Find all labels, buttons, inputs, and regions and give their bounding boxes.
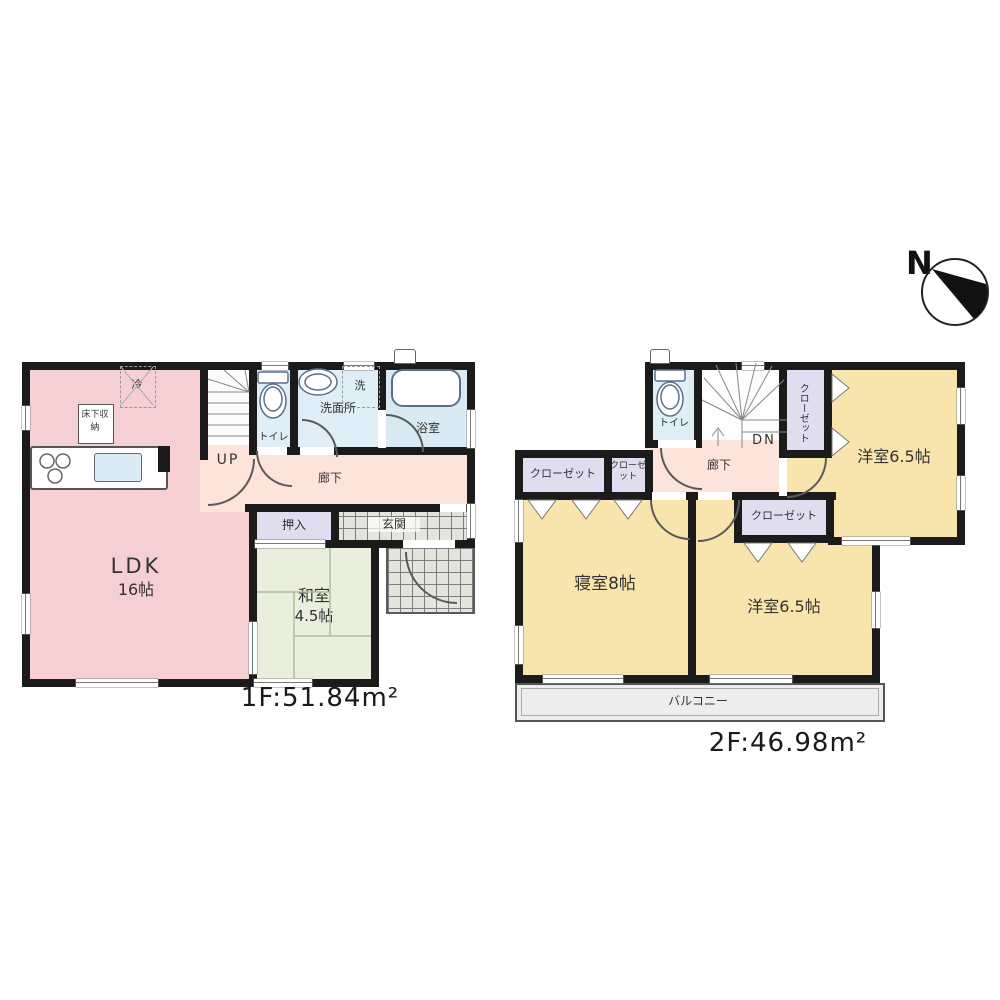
hallway-label-2f: 廊下 [694, 458, 744, 473]
wall [331, 504, 339, 548]
hallway-label: 廊下 [304, 471, 356, 486]
ldk-size: 16帖 [118, 580, 154, 599]
wall [694, 362, 702, 448]
window [22, 406, 30, 430]
dn-label: DN [744, 433, 784, 449]
western-a-label: 洋室6.5帖 [834, 447, 954, 467]
toilet-vent-2f [650, 349, 670, 364]
door-opening [698, 492, 732, 500]
laundry-label: 洗 [352, 379, 368, 392]
closet-vertical-label: クローゼット [796, 372, 808, 454]
window [957, 388, 965, 424]
closet-small-label: クローゼット [607, 461, 649, 483]
window [76, 679, 158, 687]
closet-mid-label: クローゼット [739, 509, 829, 522]
ldk-name: LDK [111, 554, 162, 578]
closet-wide-label: クローゼット [519, 467, 607, 480]
sliding-door-washitsu [249, 622, 257, 674]
bath-vent [394, 349, 416, 364]
up-label: UP [206, 452, 250, 469]
window [957, 476, 965, 510]
wall [515, 450, 653, 458]
wall [645, 362, 653, 448]
washitsu-label: 和室 4.5帖 [268, 586, 360, 625]
toilet-label-1f: トイレ [251, 432, 296, 444]
door-opening [440, 504, 466, 512]
sliding-door-oshiire [255, 540, 325, 548]
front-door-opening [403, 540, 455, 548]
wall [200, 362, 208, 460]
floor1-area-label: 1F:51.84m² [200, 683, 440, 715]
floor-plan-canvas: 冷 床下収納 LDK 16帖 和室 4.5帖 押入 玄関 廊下 UP トイレ 洗… [0, 0, 1000, 1000]
window [710, 675, 792, 683]
wall [734, 535, 834, 543]
window [262, 362, 288, 370]
ldk-label: LDK 16帖 [88, 554, 184, 599]
compass-icon: N [906, 244, 988, 325]
balcony-label: バルコニー [640, 694, 756, 709]
western-b-label: 洋室6.5帖 [724, 597, 844, 617]
floor2-area-label: 2F:46.98m² [668, 728, 908, 760]
door-opening [658, 440, 696, 448]
window [872, 592, 880, 628]
toilet-label-2f: トイレ [650, 418, 698, 430]
window [515, 500, 523, 542]
washitsu-name: 和室 [298, 586, 330, 605]
window [22, 594, 30, 634]
window [543, 675, 623, 683]
door-opening [779, 458, 787, 496]
washitsu-size: 4.5帖 [295, 607, 334, 625]
window [842, 537, 910, 545]
kitchen-sink [94, 453, 142, 482]
genkan-label: 玄関 [368, 517, 420, 532]
window [742, 362, 764, 370]
window [467, 410, 475, 448]
window [515, 626, 523, 664]
bedroom-label: 寝室8帖 [545, 574, 665, 595]
compass-n-label: N [906, 244, 933, 282]
door-opening [378, 410, 386, 448]
bath-label: 浴室 [402, 421, 454, 436]
window [467, 504, 475, 538]
fridge-label: 冷 [127, 378, 147, 391]
door-opening [652, 492, 686, 500]
counter-end-post [158, 446, 170, 472]
oshiire-label: 押入 [268, 518, 320, 533]
wall [824, 362, 832, 458]
wall [645, 362, 965, 370]
floor-storage-label: 床下収納 [80, 409, 110, 434]
wall [371, 540, 379, 687]
